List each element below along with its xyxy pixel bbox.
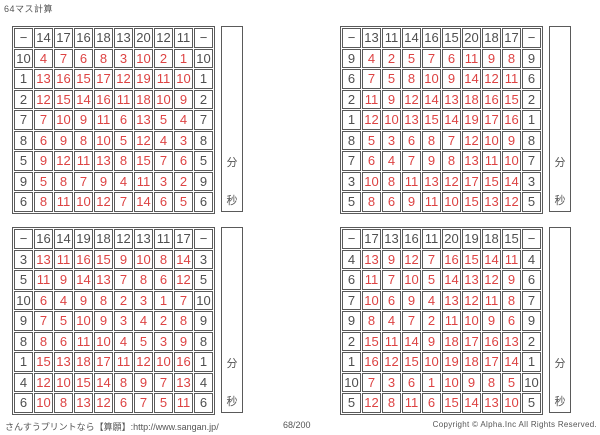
answer-cell: 5 [402,49,421,69]
operator-cell: − [194,229,213,249]
top-header-cell: 11 [382,28,401,48]
answer-cell: 4 [362,49,381,69]
answer-cell: 3 [382,373,401,393]
grid-row: 95879411329 [14,172,213,192]
answer-cell: 9 [422,151,441,171]
right-header-cell: 10 [194,291,213,311]
top-header-cell: 13 [114,28,133,48]
answer-cell: 11 [114,90,133,110]
answer-cell: 10 [502,151,521,171]
answer-cell: 1 [154,291,173,311]
answer-cell: 16 [74,250,93,270]
answer-cell: 9 [34,151,53,171]
answer-cell: 11 [94,110,113,130]
answer-cell: 13 [442,90,461,110]
right-header-cell: 2 [194,90,213,110]
answer-cell: 8 [134,270,153,290]
answer-cell: 5 [154,110,173,130]
right-header-cell: 10 [522,373,541,393]
grid-row: 984721110969 [342,311,541,331]
answer-cell: 9 [94,311,113,331]
calc-grid-top-right: −1311141615201817−9425761198967581091412… [340,26,543,214]
answer-cell: 17 [94,352,113,372]
right-header-cell: 5 [194,270,213,290]
timer-box: 分 秒 [549,26,571,212]
answer-cell: 10 [442,373,461,393]
answer-cell: 9 [174,90,193,110]
grid-header-row: −1311141615201817− [342,28,541,48]
left-header-cell: 3 [14,250,33,270]
operator-cell: − [522,229,541,249]
answer-cell: 4 [34,49,53,69]
answer-cell: 11 [502,250,521,270]
answer-cell: 11 [362,270,381,290]
answer-cell: 19 [442,352,461,372]
top-header-cell: 13 [382,229,401,249]
answer-cell: 15 [34,352,53,372]
top-header-cell: 15 [502,229,521,249]
answer-cell: 9 [502,270,521,290]
grid-header-row: −1614191812131117− [14,229,213,249]
answer-cell: 8 [114,373,133,393]
answer-cell: 16 [502,110,521,130]
answer-cell: 11 [462,49,481,69]
top-header-cell: 17 [174,229,193,249]
worksheet-unit-top-right: −1311141615201817−9425761198967581091412… [340,26,571,214]
top-header-cell: 18 [482,229,501,249]
answer-cell: 12 [402,90,421,110]
top-header-cell: 19 [74,229,93,249]
answer-cell: 9 [462,373,481,393]
answer-cell: 3 [134,291,153,311]
answer-cell: 12 [134,352,153,372]
footer-page-number: 68/200 [283,420,311,430]
left-header-cell: 1 [14,352,33,372]
answer-cell: 9 [402,291,421,311]
answer-cell: 15 [74,69,93,89]
answer-cell: 11 [482,151,501,171]
answer-cell: 14 [442,270,461,290]
left-header-cell: 2 [342,90,361,110]
answer-cell: 9 [482,49,501,69]
left-header-cell: 9 [342,49,361,69]
grid-row: 4139127161514114 [342,250,541,270]
left-header-cell: 5 [14,151,33,171]
answer-cell: 12 [502,192,521,212]
answer-cell: 13 [362,250,381,270]
answer-cell: 13 [462,151,481,171]
answer-cell: 18 [74,352,93,372]
answer-cell: 12 [94,393,113,413]
answer-cell: 16 [174,352,193,372]
operator-cell: − [342,28,361,48]
grid-row: 94257611989 [342,49,541,69]
left-header-cell: 9 [14,311,33,331]
answer-cell: 7 [114,192,133,212]
right-header-cell: 9 [522,311,541,331]
answer-cell: 10 [54,110,73,130]
answer-cell: 8 [74,131,93,151]
answer-cell: 15 [402,352,421,372]
answer-cell: 15 [362,332,381,352]
grid-row: 51191413786125 [14,270,213,290]
grid-row: 106498231710 [14,291,213,311]
answer-cell: 4 [154,131,173,151]
left-header-cell: 1 [342,352,361,372]
answer-cell: 12 [362,393,381,413]
answer-cell: 7 [422,49,441,69]
calc-grid-top-left: −1417161813201211−1047683102110113161517… [12,26,215,214]
answer-cell: 18 [462,352,481,372]
grid-header-row: −1713161120191815− [342,229,541,249]
answer-cell: 8 [382,393,401,413]
grid-row: 21511149181716132 [342,332,541,352]
answer-cell: 14 [134,192,153,212]
left-header-cell: 6 [342,69,361,89]
answer-cell: 10 [74,311,93,331]
answer-cell: 8 [422,131,441,151]
top-header-cell: 20 [134,28,153,48]
answer-cell: 6 [114,393,133,413]
answer-cell: 16 [362,352,381,372]
grid-row: 5128116151413105 [342,393,541,413]
worksheet-unit-top-left: −1417161813201211−1047683102110113161517… [12,26,243,214]
answer-cell: 6 [382,192,401,212]
answer-cell: 17 [462,172,481,192]
answer-cell: 9 [382,250,401,270]
answer-cell: 8 [94,291,113,311]
answer-cell: 7 [34,311,53,331]
answer-cell: 6 [34,131,53,151]
answer-cell: 7 [382,270,401,290]
answer-cell: 13 [422,172,441,192]
answer-cell: 9 [54,270,73,290]
answer-cell: 8 [154,250,173,270]
right-header-cell: 6 [194,393,213,413]
answer-cell: 16 [442,250,461,270]
minutes-label: 分 [222,355,242,371]
top-header-cell: 13 [134,229,153,249]
answer-cell: 11 [362,90,381,110]
answer-cell: 17 [94,69,113,89]
top-header-cell: 18 [94,28,113,48]
left-header-cell: 7 [14,110,33,130]
answer-cell: 5 [154,393,173,413]
answer-cell: 13 [94,151,113,171]
answer-cell: 9 [402,192,421,212]
grid-row: 412101514897134 [14,373,213,393]
left-header-cell: 5 [342,393,361,413]
answer-cell: 14 [174,250,193,270]
right-header-cell: 2 [522,332,541,352]
answer-cell: 12 [34,373,53,393]
answer-cell: 15 [422,110,441,130]
answer-cell: 6 [154,270,173,290]
worksheet-unit-bottom-right: −1713161120191815−4139127161514114611710… [340,227,571,415]
answer-cell: 7 [154,151,173,171]
left-header-cell: 4 [14,373,33,393]
answer-cell: 3 [114,49,133,69]
page-title: 64マス計算 [4,2,53,15]
answer-cell: 11 [54,250,73,270]
answer-cell: 10 [382,110,401,130]
answer-cell: 5 [114,131,133,151]
answer-cell: 15 [462,250,481,270]
operator-cell: − [14,28,33,48]
right-header-cell: 1 [194,69,213,89]
answer-cell: 16 [482,90,501,110]
right-header-cell: 4 [522,250,541,270]
right-header-cell: 8 [522,131,541,151]
right-header-cell: 9 [522,49,541,69]
answer-cell: 6 [74,49,93,69]
answer-cell: 8 [94,49,113,69]
right-header-cell: 1 [522,352,541,372]
answer-cell: 6 [502,311,521,331]
answer-cell: 7 [74,172,93,192]
answer-cell: 9 [422,332,441,352]
answer-cell: 4 [382,311,401,331]
answer-cell: 8 [482,373,501,393]
answer-cell: 13 [502,332,521,352]
answer-cell: 11 [422,192,441,212]
answer-cell: 15 [462,192,481,212]
answer-cell: 8 [34,332,53,352]
answer-cell: 10 [154,90,173,110]
answer-cell: 12 [362,110,381,130]
right-header-cell: 6 [522,270,541,290]
minutes-label: 分 [550,355,570,371]
answer-cell: 10 [34,393,53,413]
answer-cell: 11 [174,393,193,413]
answer-cell: 15 [94,250,113,270]
left-header-cell: 10 [14,49,33,69]
answer-cell: 10 [134,250,153,270]
page-footer: さんすうプリントなら【算願】:http://www.sangan.jp/ 68/… [0,420,600,434]
right-header-cell: 5 [522,192,541,212]
answer-cell: 10 [174,69,193,89]
grid-row: 853687121098 [342,131,541,151]
answer-cell: 6 [154,192,173,212]
left-header-cell: 9 [14,172,33,192]
answer-cell: 7 [362,69,381,89]
left-header-cell: 2 [342,332,361,352]
answer-cell: 15 [134,151,153,171]
right-header-cell: 1 [522,110,541,130]
top-header-cell: 17 [54,28,73,48]
operator-cell: − [342,229,361,249]
footer-copyright: Copyright © Alpha.Inc All Rights Reserve… [433,420,597,429]
grid-row: 21215141611181092 [14,90,213,110]
right-header-cell: 9 [194,311,213,331]
answer-cell: 14 [74,270,93,290]
answer-cell: 15 [502,90,521,110]
footer-site-text: さんすうプリントなら【算願】:http://www.sangan.jp/ [5,420,219,433]
answer-cell: 18 [442,332,461,352]
answer-cell: 10 [74,192,93,212]
right-header-cell: 9 [194,172,213,192]
answer-cell: 9 [54,131,73,151]
right-header-cell: 3 [522,172,541,192]
right-header-cell: 6 [194,192,213,212]
answer-cell: 7 [362,373,381,393]
answer-cell: 2 [154,311,173,331]
answer-cell: 10 [134,49,153,69]
answer-cell: 9 [502,131,521,151]
answer-cell: 6 [442,49,461,69]
answer-cell: 15 [442,393,461,413]
answer-cell: 9 [74,110,93,130]
answer-cell: 10 [502,393,521,413]
answer-cell: 11 [74,332,93,352]
answer-cell: 9 [482,311,501,331]
answer-cell: 12 [482,270,501,290]
answer-cell: 16 [482,332,501,352]
left-header-cell: 4 [342,250,361,270]
left-header-cell: 1 [14,69,33,89]
left-header-cell: 8 [14,332,33,352]
right-header-cell: 4 [194,373,213,393]
answer-cell: 9 [94,172,113,192]
operator-cell: − [522,28,541,48]
answer-cell: 14 [502,352,521,372]
answer-cell: 14 [462,393,481,413]
top-header-cell: 17 [502,28,521,48]
top-header-cell: 15 [442,28,461,48]
answer-cell: 11 [402,172,421,192]
answer-cell: 13 [74,393,93,413]
answer-cell: 11 [74,151,93,171]
grid-row: 886111045398 [14,332,213,352]
right-header-cell: 5 [194,151,213,171]
answer-cell: 6 [114,110,133,130]
answer-cell: 3 [174,131,193,151]
answer-cell: 7 [402,151,421,171]
answer-cell: 11 [382,332,401,352]
left-header-cell: 5 [342,192,361,212]
grid-row: 3131116159108143 [14,250,213,270]
answer-cell: 2 [154,49,173,69]
operator-cell: − [194,28,213,48]
top-header-cell: 16 [74,28,93,48]
answer-cell: 7 [154,373,173,393]
right-header-cell: 3 [194,250,213,270]
answer-cell: 5 [382,69,401,89]
grid-row: 1047683102110 [14,49,213,69]
left-header-cell: 3 [342,172,361,192]
right-header-cell: 6 [522,69,541,89]
answer-cell: 14 [74,90,93,110]
answer-cell: 2 [382,49,401,69]
answer-cell: 10 [154,352,173,372]
grid-row: 1073611098510 [342,373,541,393]
answer-cell: 14 [462,69,481,89]
answer-cell: 7 [402,311,421,331]
answer-cell: 1 [174,49,193,69]
answer-cell: 7 [114,270,133,290]
answer-cell: 10 [54,373,73,393]
answer-cell: 12 [382,352,401,372]
answer-cell: 5 [174,192,193,212]
top-header-cell: 11 [154,229,173,249]
answer-cell: 4 [174,110,193,130]
answer-cell: 13 [54,352,73,372]
right-header-cell: 8 [194,332,213,352]
answer-cell: 12 [94,192,113,212]
answer-cell: 12 [402,250,421,270]
answer-cell: 11 [114,352,133,372]
answer-cell: 8 [114,151,133,171]
answer-cell: 13 [94,270,113,290]
answer-cell: 9 [134,373,153,393]
calc-grid-bottom-right: −1713161120191815−4139127161514114611710… [340,227,543,415]
answer-cell: 11 [482,291,501,311]
answer-cell: 9 [114,250,133,270]
answer-cell: 13 [134,110,153,130]
answer-cell: 12 [482,69,501,89]
answer-cell: 10 [94,332,113,352]
answer-cell: 16 [54,69,73,89]
left-header-cell: 8 [14,131,33,151]
answer-cell: 7 [34,110,53,130]
top-header-cell: 19 [462,229,481,249]
answer-cell: 8 [502,291,521,311]
answer-cell: 11 [154,69,173,89]
answer-cell: 8 [382,172,401,192]
answer-cell: 10 [94,131,113,151]
answer-cell: 9 [442,69,461,89]
answer-cell: 3 [154,172,173,192]
left-header-cell: 8 [342,131,361,151]
answer-cell: 7 [422,250,441,270]
grid-row: 115131817111210161 [14,352,213,372]
answer-cell: 18 [134,90,153,110]
answer-cell: 15 [54,90,73,110]
answer-cell: 10 [362,172,381,192]
answer-cell: 5 [54,311,73,331]
grid-row: 7710911613547 [14,110,213,130]
answer-cell: 17 [462,332,481,352]
answer-cell: 10 [422,69,441,89]
answer-cell: 8 [442,151,461,171]
answer-cell: 10 [482,131,501,151]
answer-cell: 3 [382,131,401,151]
top-header-cell: 20 [442,229,461,249]
answer-cell: 15 [74,373,93,393]
answer-cell: 5 [134,332,153,352]
answer-cell: 6 [362,151,381,171]
left-header-cell: 1 [342,110,361,130]
answer-cell: 10 [442,192,461,212]
answer-cell: 12 [54,151,73,171]
answer-cell: 4 [134,311,153,331]
answer-cell: 10 [462,311,481,331]
grid-row: 112101315141917161 [342,110,541,130]
minutes-label: 分 [550,154,570,170]
answer-cell: 13 [442,291,461,311]
answer-cell: 17 [482,110,501,130]
top-header-cell: 12 [114,229,133,249]
grid-header-row: −1417161813201211− [14,28,213,48]
top-header-cell: 16 [402,229,421,249]
answer-cell: 6 [54,332,73,352]
timer-box: 分 秒 [221,227,243,413]
answer-cell: 12 [114,69,133,89]
answer-cell: 8 [174,311,193,331]
answer-cell: 8 [362,192,381,212]
top-header-cell: 14 [402,28,421,48]
right-header-cell: 8 [194,131,213,151]
